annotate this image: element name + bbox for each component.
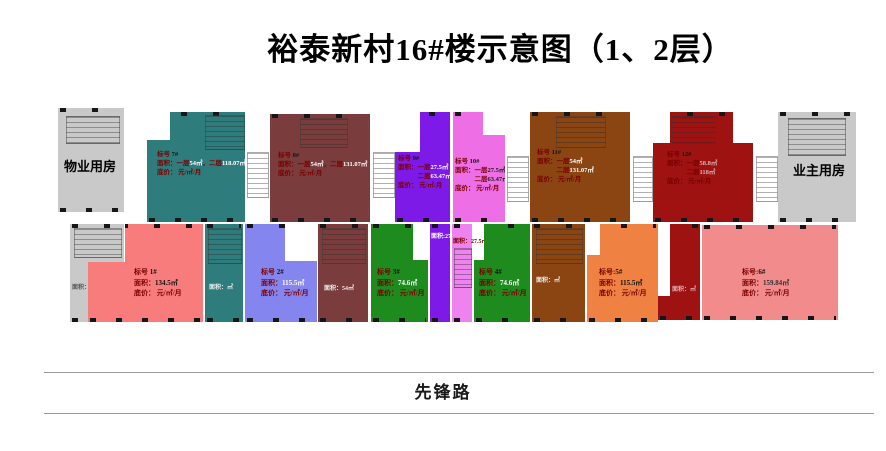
- unit-label-line: 底价： 元/㎡/月: [455, 184, 509, 193]
- unit-9: 标号 9#面积：一层27.5㎡ 二层63.47㎡底价： 元/㎡/月: [395, 112, 450, 222]
- unit-label-line: 标号 1#: [134, 267, 182, 278]
- unit-label-line: 二层131.07㎡: [537, 166, 594, 175]
- unit-label-line: 面积：74.6㎡: [377, 278, 425, 289]
- unit-label-line: 标号 8#: [278, 151, 367, 160]
- unit-label-line: 底价： 元/㎡/月: [134, 288, 182, 299]
- unit-label-line: 标号 4#: [479, 267, 527, 278]
- unit-6: 标号:6#面积：159.84㎡底价： 元/㎡/月: [702, 225, 838, 320]
- property-room-label: 物业用房: [64, 156, 116, 175]
- sliver-teal-area-label: 面积：㎡: [209, 282, 233, 291]
- unit-1-label: 标号 1#面积：134.5㎡底价： 元/㎡/月: [134, 267, 182, 299]
- unit-label-line: 标号 11#: [537, 148, 594, 157]
- staircase: [300, 118, 348, 148]
- unit-label-line: 底价： 元/㎡/月: [479, 288, 527, 299]
- unit-11-label: 标号 11#面积：一层54㎡ 二层131.07㎡底价： 元/㎡/月: [537, 148, 594, 184]
- unit-label-line: 底价： 元/㎡/月: [398, 181, 452, 190]
- unit-2: 标号 2#面积：115.5㎡底价： 元/㎡/月: [245, 224, 317, 322]
- staircase: [66, 116, 120, 144]
- owner-room-label: 业主用房: [793, 160, 845, 179]
- road-edge-line: [44, 372, 874, 373]
- staircase: [536, 228, 583, 264]
- unit-label-line: 底价： 元/㎡/月: [261, 288, 309, 299]
- unit-label-line: 面积：一层27.5㎡: [398, 163, 452, 172]
- sliver-purple-stair-unit: 面积:27.5㎡: [430, 224, 450, 322]
- unit-label-line: 面积：74.6㎡: [479, 278, 527, 289]
- unit-label-line: 标号 3#: [377, 267, 425, 278]
- unit-6-label: 标号:6#面积：159.84㎡底价： 元/㎡/月: [742, 267, 790, 299]
- unit-label-line: 底价： 元/㎡/月: [377, 288, 425, 299]
- unit-label-line: 二层63.47㎡: [398, 172, 452, 181]
- staircase: [788, 118, 846, 156]
- staircase: [672, 116, 716, 144]
- unit-4-label: 标号 4#面积：74.6㎡底价： 元/㎡/月: [479, 267, 527, 299]
- unit-label-line: 面积：一层54㎡，二层131.07㎡: [278, 160, 367, 169]
- unit-12-label: 标号 12#面积：一层58.8㎡ 二层118㎡底价： 元/㎡/月: [667, 150, 717, 186]
- road-name: 先锋路: [0, 378, 886, 403]
- unit-5: 标号:5#面积：115.5㎡底价： 元/㎡/月: [587, 224, 658, 322]
- staircase: [205, 115, 245, 150]
- unit-label-line: 底价： 元/㎡/月: [742, 288, 790, 299]
- unit-label-line: 底价： 元/㎡/月: [537, 175, 594, 184]
- staircase: [208, 228, 242, 264]
- page-title: 裕泰新村16#楼示意图（1、2层）: [0, 24, 886, 69]
- unit-label-line: 标号:5#: [599, 267, 647, 278]
- unit-label-line: 标号 12#: [667, 150, 717, 159]
- unit-label-line: 面积：一层54㎡: [537, 157, 594, 166]
- sliver-brown-area-label: 面积：㎡: [536, 275, 560, 284]
- sliver-brownred-area-label: 面积：54㎡: [324, 283, 354, 292]
- unit-label-line: 标号:6#: [742, 267, 790, 278]
- staircase: [454, 248, 472, 288]
- unit-label-line: 二层63.47㎡: [455, 175, 509, 184]
- unit-label-line: 面积：115.5㎡: [261, 278, 309, 289]
- unit-label-line: 标号 9#: [398, 154, 452, 163]
- unit-label-line: 面积：159.84㎡: [742, 278, 790, 289]
- staircase: [507, 156, 529, 202]
- unit-label-line: 标号 2#: [261, 267, 309, 278]
- sliver-pink-area-label: 面积：27.5㎡: [453, 236, 488, 245]
- unit-10-label: 标号 10#面积：一层27.5㎡ 二层63.47㎡底价： 元/㎡/月: [455, 157, 509, 193]
- unit-9-label: 标号 9#面积：一层27.5㎡ 二层63.47㎡底价： 元/㎡/月: [398, 154, 452, 190]
- unit-2-label: 标号 2#面积：115.5㎡底价： 元/㎡/月: [261, 267, 309, 299]
- staircase: [556, 116, 606, 148]
- staircase: [74, 228, 122, 258]
- unit-5-label: 标号:5#面积：115.5㎡底价： 元/㎡/月: [599, 267, 647, 299]
- unit-label-line: 面积：134.5㎡: [134, 278, 182, 289]
- unit-label-line: 二层118㎡: [667, 168, 717, 177]
- unit-label-line: 面积：115.5㎡: [599, 278, 647, 289]
- unit-label-line: 底价： 元/㎡/月: [157, 168, 246, 177]
- sliver-darkred-stair-unit: 面积：㎡: [658, 224, 700, 320]
- unit-7-label: 标号 7#面积：一层54㎡，二层118.07㎡底价： 元/㎡/月: [157, 150, 246, 177]
- sliver-darkred-area-label: 面积：㎡: [672, 284, 696, 293]
- staircase: [373, 152, 395, 198]
- road-edge-line: [44, 413, 874, 414]
- floorplan-canvas: 裕泰新村16#楼示意图（1、2层） 物业用房 标号 7#面积：一层54㎡，二层1…: [0, 0, 886, 451]
- unit-label-line: 底价： 元/㎡/月: [599, 288, 647, 299]
- unit-3: 标号 3#面积：74.6㎡底价： 元/㎡/月: [371, 224, 428, 322]
- unit-label-line: 标号 7#: [157, 150, 246, 159]
- staircase: [756, 156, 778, 202]
- unit-label-line: 面积：一层54㎡，二层118.07㎡: [157, 159, 246, 168]
- unit-label-line: 面积：一层27.5㎡: [455, 166, 509, 175]
- staircase: [322, 228, 366, 264]
- unit-label-line: 底价： 元/㎡/月: [278, 169, 367, 178]
- unit-3-label: 标号 3#面积：74.6㎡底价： 元/㎡/月: [377, 267, 425, 299]
- unit-10: 标号 10#面积：一层27.5㎡ 二层63.47㎡底价： 元/㎡/月: [453, 112, 505, 222]
- unit-8-label: 标号 8#面积：一层54㎡，二层131.07㎡底价： 元/㎡/月: [278, 151, 367, 178]
- staircase: [247, 152, 269, 198]
- unit-label-line: 标号 10#: [455, 157, 509, 166]
- unit-label-line: 面积：一层58.8㎡: [667, 159, 717, 168]
- unit-label-line: 底价： 元/㎡/月: [667, 177, 717, 186]
- staircase: [633, 156, 653, 202]
